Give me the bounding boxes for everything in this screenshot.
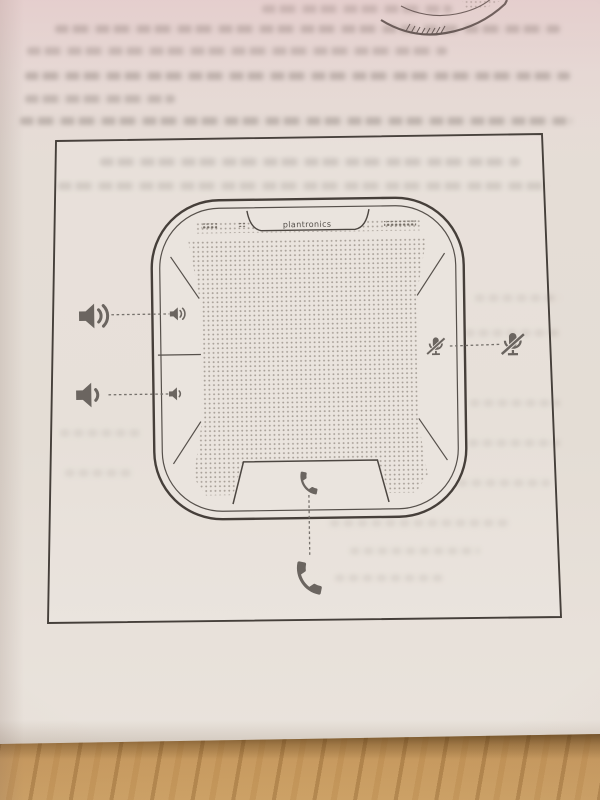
photo-of-manual-page: plantronics [0,0,600,800]
volume-button-divider [158,355,201,356]
brand-label: plantronics [283,220,332,230]
mic-port-cluster [238,223,245,227]
call-button-tab [232,460,389,504]
speaker-grille [188,238,430,495]
device-diagram: plantronics [0,0,600,800]
mic-port-cluster [201,223,217,228]
mic-port-cluster [384,220,416,225]
partial-device-sketch [381,0,507,35]
